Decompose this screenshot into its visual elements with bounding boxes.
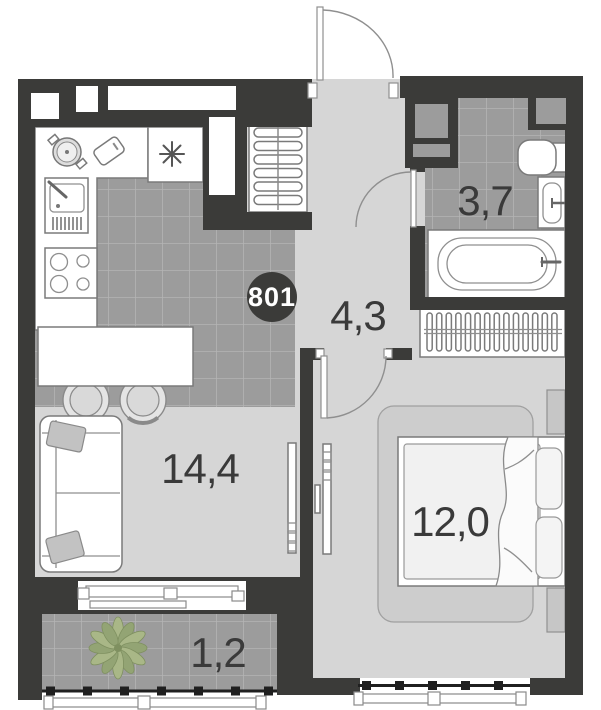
washbasin bbox=[538, 177, 565, 228]
room-label-kitchen-living: 14,4 bbox=[161, 445, 239, 492]
sofa bbox=[40, 416, 122, 572]
door-leaf bbox=[411, 170, 416, 227]
room-label-balcony: 1,2 bbox=[190, 629, 245, 676]
bedroom-window bbox=[354, 681, 530, 705]
stove bbox=[45, 248, 97, 298]
kitchen-sink bbox=[45, 178, 88, 233]
floor-plan-page: 14,4 4,3 3,7 12,0 1,2 801 bbox=[0, 0, 601, 710]
shaft bbox=[76, 86, 98, 112]
door-swing-arc bbox=[323, 10, 393, 78]
nightstand bbox=[547, 390, 565, 434]
bedroom-wardrobe bbox=[420, 308, 565, 357]
pillow bbox=[536, 448, 562, 509]
wall-panel bbox=[315, 485, 320, 513]
apartment-number-badge: 801 bbox=[247, 272, 297, 322]
room-label-hall: 4,3 bbox=[330, 292, 385, 339]
door-leaf bbox=[317, 7, 323, 80]
room-label-bedroom: 12,0 bbox=[411, 498, 489, 545]
radiator bbox=[288, 443, 296, 553]
duct bbox=[413, 144, 450, 157]
nightstand bbox=[547, 588, 565, 632]
shaft bbox=[31, 93, 59, 119]
room-label-bathroom: 3,7 bbox=[457, 177, 512, 224]
dining-table bbox=[38, 327, 193, 386]
balcony-window-unit bbox=[78, 581, 246, 610]
shaft bbox=[108, 86, 236, 110]
door-leaf bbox=[321, 356, 327, 418]
hood-asterisk-icon bbox=[160, 142, 184, 166]
shaft bbox=[209, 117, 235, 195]
toilet bbox=[518, 140, 566, 175]
floor-plan: 14,4 4,3 3,7 12,0 1,2 801 bbox=[0, 0, 601, 710]
balcony-railing bbox=[42, 687, 277, 710]
radiator bbox=[323, 444, 331, 554]
duct bbox=[536, 98, 566, 124]
duct bbox=[415, 104, 448, 138]
pillow bbox=[536, 517, 562, 578]
apartment-number: 801 bbox=[248, 282, 296, 312]
bathtub bbox=[428, 230, 565, 298]
